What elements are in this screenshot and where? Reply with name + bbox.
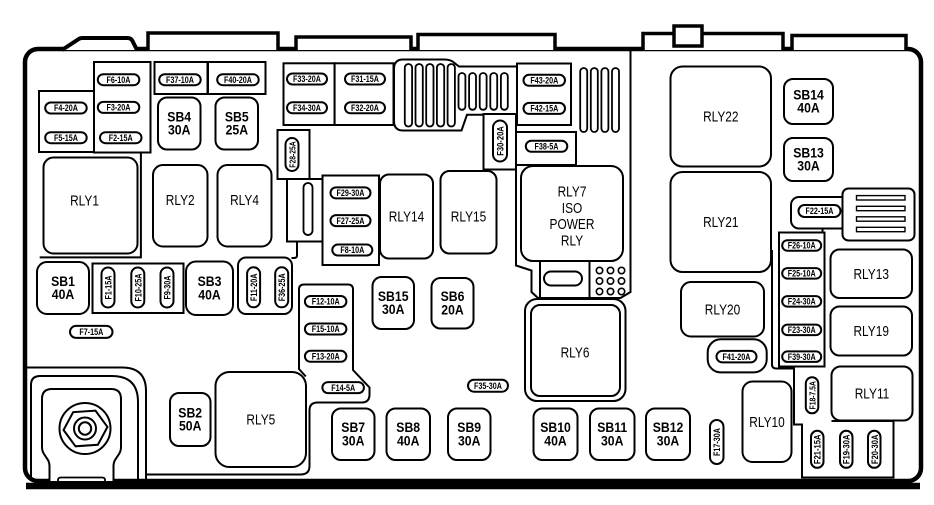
svg-text:30A: 30A xyxy=(601,433,624,449)
svg-text:F40-20A: F40-20A xyxy=(224,75,252,85)
svg-text:RLY13: RLY13 xyxy=(853,266,888,282)
svg-text:50A: 50A xyxy=(179,418,202,434)
svg-text:F2-15A: F2-15A xyxy=(109,133,133,143)
svg-text:F29-30A: F29-30A xyxy=(337,188,365,198)
svg-text:30A: 30A xyxy=(797,158,820,174)
svg-text:F19-30A: F19-30A xyxy=(841,435,852,465)
svg-text:RLY4: RLY4 xyxy=(230,192,259,208)
svg-text:F14-5A: F14-5A xyxy=(331,383,355,393)
svg-text:F34-30A: F34-30A xyxy=(293,103,321,113)
svg-text:30A: 30A xyxy=(458,433,481,449)
svg-text:RLY10: RLY10 xyxy=(749,414,784,430)
svg-text:25A: 25A xyxy=(226,122,249,138)
svg-text:F4-20A: F4-20A xyxy=(54,103,78,113)
svg-text:RLY7: RLY7 xyxy=(558,183,587,199)
svg-text:POWER: POWER xyxy=(550,216,595,232)
svg-text:F43-20A: F43-20A xyxy=(530,76,558,86)
svg-text:F28-25A: F28-25A xyxy=(288,141,298,168)
svg-text:RLY11: RLY11 xyxy=(855,385,890,401)
svg-text:F10-25A: F10-25A xyxy=(134,273,144,301)
svg-text:20A: 20A xyxy=(441,302,464,318)
svg-text:F18-7.5A: F18-7.5A xyxy=(808,381,818,410)
svg-text:F9-30A: F9-30A xyxy=(163,275,173,299)
svg-text:RLY20: RLY20 xyxy=(705,301,740,317)
svg-text:30A: 30A xyxy=(342,433,365,449)
svg-text:RLY6: RLY6 xyxy=(561,344,590,360)
svg-text:40A: 40A xyxy=(544,433,567,449)
svg-text:F21-15A: F21-15A xyxy=(812,435,823,465)
svg-text:30A: 30A xyxy=(168,122,191,138)
svg-text:RLY14: RLY14 xyxy=(389,208,424,224)
svg-text:F24-30A: F24-30A xyxy=(788,297,816,307)
svg-text:F12-10A: F12-10A xyxy=(312,297,340,307)
svg-text:F33-20A: F33-20A xyxy=(293,74,321,84)
svg-text:F13-20A: F13-20A xyxy=(312,352,340,362)
svg-text:30A: 30A xyxy=(657,433,680,449)
svg-text:F39-30A: F39-30A xyxy=(788,352,816,362)
svg-text:40A: 40A xyxy=(52,286,75,302)
svg-text:RLY19: RLY19 xyxy=(853,323,888,339)
svg-text:RLY: RLY xyxy=(561,232,583,248)
svg-text:40A: 40A xyxy=(797,100,820,116)
svg-text:F8-10A: F8-10A xyxy=(340,245,364,255)
svg-text:RLY21: RLY21 xyxy=(703,214,738,230)
svg-text:RLY1: RLY1 xyxy=(70,192,99,208)
svg-text:F15-10A: F15-10A xyxy=(312,324,340,334)
svg-text:F6-10A: F6-10A xyxy=(107,75,131,85)
svg-text:30A: 30A xyxy=(382,301,405,317)
svg-text:F36-25A: F36-25A xyxy=(277,273,287,301)
svg-text:F42-15A: F42-15A xyxy=(530,104,558,114)
svg-text:F22-15A: F22-15A xyxy=(806,206,834,216)
svg-text:F41-20A: F41-20A xyxy=(723,352,751,362)
svg-text:F35-30A: F35-30A xyxy=(474,381,502,391)
svg-text:F31-15A: F31-15A xyxy=(351,74,379,84)
svg-text:F30-20A: F30-20A xyxy=(495,126,506,156)
svg-text:40A: 40A xyxy=(198,287,221,303)
svg-text:ISO: ISO xyxy=(562,200,582,216)
svg-text:RLY5: RLY5 xyxy=(246,411,275,427)
svg-text:F37-10A: F37-10A xyxy=(166,75,194,85)
svg-text:F1-15A: F1-15A xyxy=(104,275,114,299)
svg-text:F25-10A: F25-10A xyxy=(788,269,816,279)
svg-text:F38-5A: F38-5A xyxy=(535,142,559,152)
svg-text:F20-30A: F20-30A xyxy=(869,435,880,465)
svg-text:RLY15: RLY15 xyxy=(451,208,486,224)
svg-text:F27-25A: F27-25A xyxy=(337,216,365,226)
svg-text:F7-15A: F7-15A xyxy=(79,327,103,337)
svg-text:F11-20A: F11-20A xyxy=(249,273,259,301)
svg-text:F32-20A: F32-20A xyxy=(351,103,379,113)
svg-text:F26-10A: F26-10A xyxy=(788,241,816,251)
svg-text:F5-15A: F5-15A xyxy=(54,133,78,143)
svg-text:F23-30A: F23-30A xyxy=(788,325,816,335)
svg-text:F3-20A: F3-20A xyxy=(107,103,131,113)
svg-text:40A: 40A xyxy=(397,433,420,449)
svg-text:F17-30A: F17-30A xyxy=(712,428,722,456)
svg-text:RLY2: RLY2 xyxy=(166,192,195,208)
svg-text:RLY22: RLY22 xyxy=(703,108,738,124)
